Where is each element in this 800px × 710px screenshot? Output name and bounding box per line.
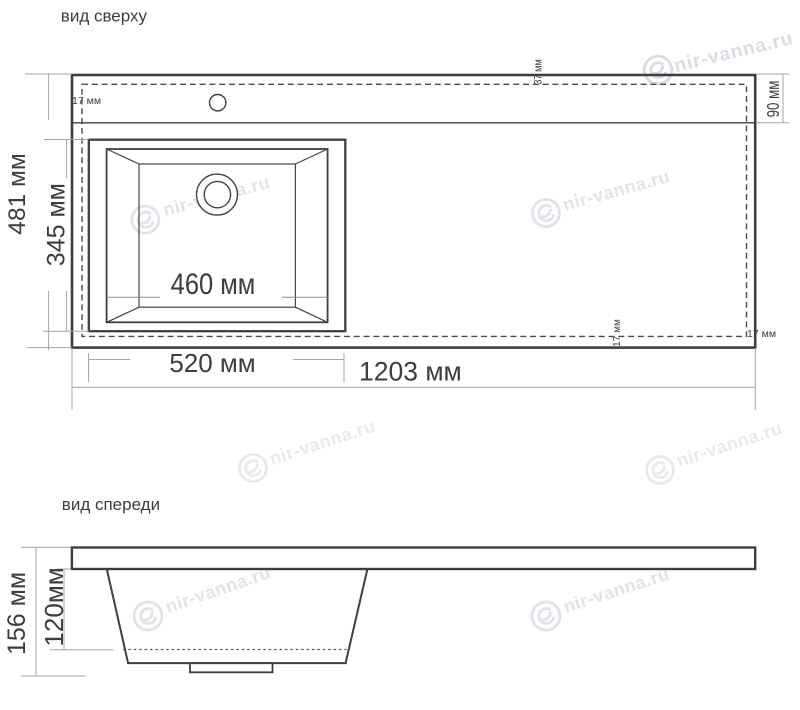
svg-text:вид сверху: вид сверху (61, 7, 148, 26)
svg-text:345 мм: 345 мм (43, 183, 71, 266)
svg-text:520 мм: 520 мм (169, 348, 255, 378)
svg-text:460 мм: 460 мм (171, 267, 256, 300)
svg-text:120мм: 120мм (39, 567, 69, 646)
svg-text:1203 мм: 1203 мм (359, 357, 462, 387)
svg-text:17 мм: 17 мм (747, 328, 776, 340)
svg-text:17 мм: 17 мм (612, 319, 623, 347)
svg-text:481 мм: 481 мм (4, 153, 31, 234)
svg-text:17 мм: 17 мм (72, 95, 101, 107)
svg-text:вид спереди: вид спереди (62, 495, 160, 514)
svg-text:156 мм: 156 мм (3, 572, 31, 655)
svg-text:90 мм: 90 мм (764, 81, 783, 118)
svg-text:37 мм: 37 мм (533, 59, 545, 85)
